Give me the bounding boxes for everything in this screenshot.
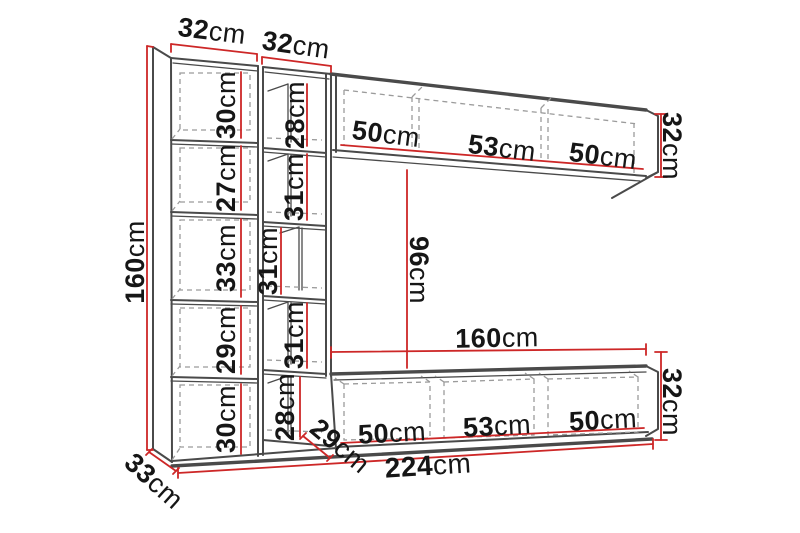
col-a-shelf-3-label: 33cm <box>211 224 241 292</box>
col-a-shelf-5-label: 30cm <box>211 385 241 453</box>
col-a-shelf-2-label: 27cm <box>211 144 241 212</box>
col-b-shelf-3-label: 31cm <box>253 227 283 295</box>
col-a-shelf-1-label: 30cm <box>211 71 241 139</box>
side-depth-label: 33cm <box>119 447 190 515</box>
niche-height-label: 96cm <box>404 236 434 304</box>
col-a-width-label: 32cm <box>176 12 247 50</box>
top-cabinet-height-label: 32cm <box>657 112 687 180</box>
bench-length-label: 160cm <box>455 322 539 353</box>
col-a-shelf-4-label: 29cm <box>211 306 241 374</box>
col-b-shelf-4-label: 31cm <box>279 301 309 369</box>
dimension-labels: 32cm 32cm 30cm 27cm 33cm 29cm 30cm 28cm … <box>119 12 687 515</box>
bench-section-3-label: 50cm <box>568 403 638 437</box>
total-height-label: 160cm <box>120 220 150 304</box>
bench-section-1-label: 50cm <box>357 416 427 450</box>
wall-unit-diagram-svg: 32cm 32cm 30cm 27cm 33cm 29cm 30cm 28cm … <box>0 0 800 533</box>
dimension-diagram-page: 32cm 32cm 30cm 27cm 33cm 29cm 30cm 28cm … <box>0 0 800 533</box>
bench-section-2-label: 53cm <box>462 409 532 443</box>
col-b-shelf-1-label: 28cm <box>280 81 310 149</box>
col-b-shelf-5-label: 28cm <box>270 373 300 441</box>
total-width-label: 224cm <box>384 447 472 483</box>
top-cabinet-section-3-label: 50cm <box>567 137 638 175</box>
bench-height-label: 32cm <box>657 368 687 436</box>
col-b-shelf-2-label: 31cm <box>279 153 309 221</box>
